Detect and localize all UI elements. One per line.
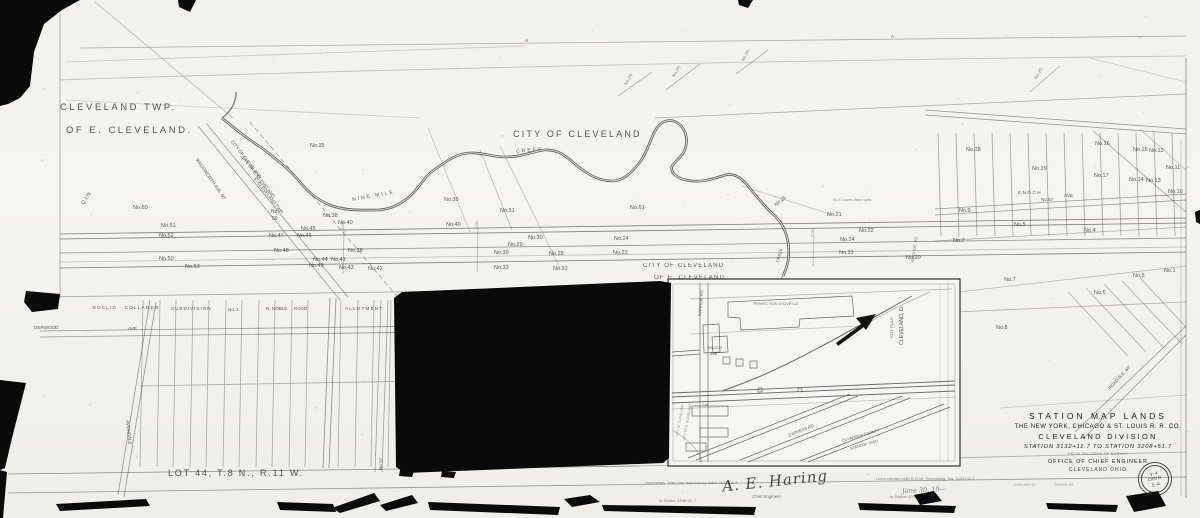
map-label: No.15: [1133, 148, 1148, 154]
map-label: No.8: [996, 326, 1008, 332]
map-label: 3150: [342, 222, 346, 230]
railroad-name: THE NEW YORK, CHICAGO & ST. LOUIS R. R. …: [995, 424, 1200, 430]
map-label: No.29: [624, 73, 634, 86]
map-label: THE: [702, 404, 709, 407]
inset-street-label: IVANHOE RD.: [698, 289, 705, 316]
map-label: No.57: [1041, 198, 1053, 203]
map-label: No.7: [953, 239, 965, 245]
map-label: No.25: [774, 196, 788, 208]
map-label: N. NOBLE: [266, 307, 287, 312]
map-label: No.25: [672, 65, 682, 78]
map-label: No.42: [368, 267, 383, 273]
map-label: AVE.: [1064, 194, 1074, 199]
inset-street-label: EXPRESS RD: [788, 424, 815, 438]
map-label: A: [525, 40, 528, 45]
map-label: No.38: [348, 249, 363, 255]
map-label: No.1: [1164, 269, 1176, 275]
map-border-bottom: [8, 477, 1186, 493]
lot-grid-right: [938, 133, 1175, 236]
map-label: No.20: [906, 256, 921, 262]
map-label: No.31: [500, 209, 515, 215]
map-label: No.11: [1166, 166, 1180, 172]
map-label: No.53: [185, 265, 200, 271]
map-label: No.37: [379, 458, 384, 470]
creek-label: CREEK: [776, 248, 784, 263]
inset-ivanhoe-rd: [700, 283, 708, 462]
map-label: 3160: [476, 221, 480, 229]
map-label: CHECKED BY: [1014, 484, 1036, 487]
map-label: No.29: [508, 243, 523, 249]
railroad-tracks: [60, 218, 1186, 268]
inset-building-label: PERFECTION STOVE CO.: [753, 303, 799, 307]
map-label: No.19: [1032, 167, 1047, 173]
track-direction-arrow: [836, 314, 876, 346]
map-label: ENOCH: [1018, 191, 1042, 196]
map-label: ROAD: [294, 307, 307, 312]
map-label: WADSWORTH AVE. 60': [194, 158, 226, 201]
map-label: No.40: [446, 223, 461, 229]
map-label: STATE OF OHIO: [850, 440, 879, 452]
map-label: CITY OF CLEVELAND: [676, 404, 685, 436]
scan-tear-top-left: [0, 0, 80, 106]
map-label: No.23: [613, 251, 628, 257]
map-label: No.6: [1094, 291, 1106, 297]
map-label: No.5: [1014, 223, 1026, 229]
avondale-road: [118, 300, 150, 495]
map-label: No.5: [1133, 274, 1145, 280]
map-label: No.9: [959, 209, 971, 215]
map-label: CITY OF CLEVELAND: [229, 140, 261, 180]
map-label: 3180: [812, 229, 816, 237]
map-label: No.61: [630, 206, 645, 212]
creek-label: NINE MILE: [352, 191, 395, 203]
map-label: No.43: [339, 266, 354, 272]
map-label: AVE.: [128, 327, 138, 332]
map-label: No.10: [1168, 190, 1183, 196]
map-label: No. 1: [228, 308, 239, 313]
map-label: No.33: [494, 266, 509, 272]
map-label: CITY OF E. CLEVELAND: [239, 155, 275, 199]
map-label: Q.178: [81, 192, 93, 206]
inset-panel: [668, 279, 960, 466]
map-label: No.16: [1095, 142, 1110, 148]
map-label: No.24: [840, 238, 855, 244]
map-label: AVONDALE: [124, 420, 131, 445]
title-block: STATION MAP LANDS THE NEW YORK, CHICAGO …: [995, 412, 1200, 473]
noble-road: [323, 298, 330, 468]
map-label: No.52: [159, 234, 174, 240]
map-label: CLEVELAND TWP.: [60, 103, 176, 113]
map-label: No.39: [444, 198, 459, 204]
stamp-line: 5-A: [1151, 481, 1161, 488]
map-label: DERWOOD: [34, 326, 58, 331]
inset-title-label: CLEVELAND, O.: [900, 306, 905, 345]
chief-engineer-signature: A. E. Haring: [721, 467, 828, 496]
inset-street-label: ENOCH: [708, 347, 722, 351]
wadsworth-ave-road: [198, 126, 340, 300]
map-label: No.38: [323, 214, 338, 220]
division-name: CLEVELAND DIVISION: [995, 433, 1200, 441]
map-label: CUYAHOGA COUNTY: [842, 429, 880, 443]
map-label: 59: [272, 217, 278, 222]
office-line: OFFICE OF CHIEF ENGINEER: [995, 460, 1200, 466]
map-label: No.44: [313, 258, 328, 264]
map-label: No.39: [494, 251, 509, 257]
map-label: TRACED BY: [1054, 484, 1073, 487]
map-label: No.32: [553, 267, 568, 273]
map-label: No.47: [269, 234, 284, 240]
inset-title-label: CITY PLAN: [890, 317, 894, 338]
map-label: No.14: [1129, 178, 1144, 184]
redaction-box: [394, 281, 671, 473]
map-label: No.25: [1034, 67, 1044, 80]
map-label: ROAD N.E. 60': [1108, 365, 1132, 391]
inset-street-label: AVE.: [710, 353, 718, 357]
map-label: OF E. CLEVELAND.: [66, 126, 193, 136]
map-label: No.7: [1004, 278, 1016, 284]
map-title: STATION MAP LANDS: [995, 412, 1200, 421]
map-label: E. CLEVELAND TWP.: [252, 177, 283, 215]
creek-label: CREEK: [516, 147, 544, 155]
map-label: No.24: [614, 237, 629, 243]
map-label: No.13: [1146, 179, 1161, 185]
map-label: No.21: [827, 213, 842, 219]
map-label: No.51: [161, 224, 176, 230]
map-label: No.18: [966, 148, 981, 154]
map-label: No.21 covers these rights: [833, 199, 871, 202]
map-label: No.45: [301, 227, 316, 233]
lot-44-label: LOT 44, T.8 N., R.11 W.: [168, 469, 304, 478]
map-label: No: [271, 210, 277, 215]
station-map-sheet: CLEVELAND TWP.OF E. CLEVELAND.CITY OF CL…: [0, 0, 1200, 518]
map-label: No.17: [1094, 174, 1109, 180]
signature-title: Chief Engineer: [752, 494, 781, 499]
map-label: No.48: [274, 249, 289, 255]
map-label: No.22: [859, 229, 874, 235]
map-label: No.28: [549, 252, 564, 258]
map-label: No.35: [310, 144, 325, 150]
nine-mile-creek: [222, 92, 789, 284]
map-label: IVANHOE RD.: [911, 235, 919, 262]
map-label: OF E. CLEVELAND: [654, 275, 725, 281]
map-label: No.4: [1084, 229, 1096, 235]
map-label: SUBDIVISION: [171, 307, 212, 312]
city-boundary-line: [250, 122, 400, 300]
map-label: No.41: [331, 258, 346, 264]
map-label: No.23: [839, 251, 854, 257]
city-of-cleveland-label: CITY OF CLEVELAND: [513, 130, 642, 139]
map-label: No.26: [741, 49, 751, 62]
map-label: No.50: [159, 257, 174, 263]
map-label: A: [891, 36, 894, 41]
map-label: CITY OF CLEVELAND: [643, 263, 724, 269]
map-label: No.46: [297, 234, 312, 240]
inset-building: [728, 296, 854, 330]
inset-tracks: [672, 381, 955, 397]
map-label: No.12: [1149, 149, 1164, 155]
map-label: ALLOTMENT: [345, 307, 383, 312]
enoch-ave-road: [935, 194, 1186, 209]
map-label: No.30: [528, 236, 543, 242]
records-note: FROM RECORDS OF SURVEY: [995, 453, 1200, 457]
map-label: No.49: [309, 264, 324, 270]
map-label: No.60: [133, 206, 148, 212]
subdivision-grid: [140, 300, 420, 467]
scan-tear-bottom-left: [0, 380, 26, 470]
map-label: CITY OF E. CLEVELAND: [683, 404, 692, 440]
map-label: No.40: [338, 221, 353, 227]
station-range: STATION 3132+11.7 TO STATION 3208+51.7: [995, 444, 1200, 450]
map-label: EUCLID - COLLAMER: [93, 306, 160, 311]
